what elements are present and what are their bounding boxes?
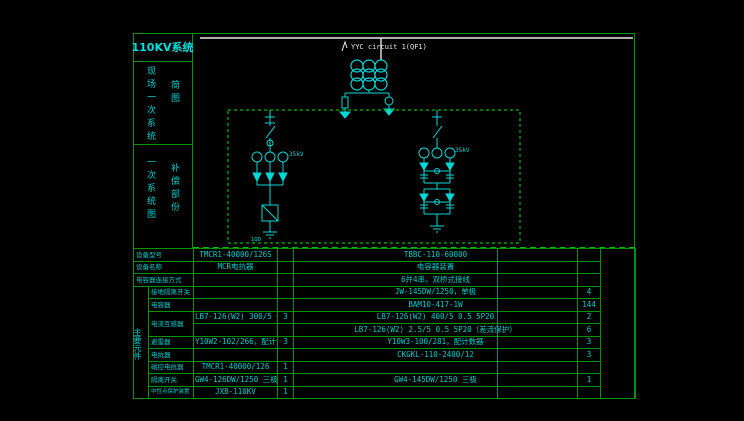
table-row: 磁控电抗器 TMCR1-40000/126 1 (134, 361, 636, 374)
right-model-value: 6并4串，双桥式接线 (294, 274, 578, 287)
row-label: 接地隔离开关 (149, 286, 194, 299)
table-row: 电容器连接方式 6并4串，双桥式接线 (134, 274, 636, 287)
left-model-value (194, 286, 278, 299)
right-branch-voltage-label: 35kV (455, 147, 470, 154)
left-model-value: TMCR1-40000/126 (194, 361, 278, 374)
right-qty: 4 (578, 286, 601, 299)
fuse-icon (342, 97, 348, 108)
right-qty (578, 249, 601, 262)
left-qty (278, 299, 294, 312)
table-row: LB7-126(W2) 2.5/5 0.5 5P20（差流保护） 6 (134, 324, 636, 337)
right-qty: 3 (578, 336, 601, 349)
left-model-value (194, 349, 278, 362)
group-label: 主要元件 (134, 286, 149, 399)
row-label: 电容器连接方式 (134, 274, 194, 287)
table-row: 隔离开关 GW4-126DW/1250 三极 1 GW4-145DW/1250 … (134, 374, 636, 387)
row-label: 中性点保护装置 (149, 386, 194, 399)
left-model-value (194, 324, 278, 337)
right-model-value: LB7-126(W2) 400/5 0.5 5P20 (294, 311, 578, 324)
right-qty: 3 (578, 349, 601, 362)
left-model-value: MCR电抗器 (194, 261, 278, 274)
section1-text: 现场一次系统 (144, 66, 157, 144)
row-label: 磁控电抗器 (149, 361, 194, 374)
table-row: 主要元件 接地隔离开关 JW-145DW/1250，单极 4 (134, 286, 636, 299)
right-qty (578, 386, 601, 399)
left-qty: 1 (278, 386, 294, 399)
left-model-value: Y10W2-102/266，配计数器 (194, 336, 278, 349)
drawing-title: 110KV系统 (133, 33, 192, 62)
left-model-value: LB7-126(W2) 300/5 0.5 5P20 (194, 311, 278, 324)
right-qty (578, 361, 601, 374)
table-row: 避雷器 Y10W2-102/266，配计数器 3 Y10W3-100/281，配… (134, 336, 636, 349)
section2-text: 一次系统图 (144, 157, 157, 248)
thyristor-icon (253, 173, 261, 181)
breaker-icon (266, 126, 275, 138)
left-qty (278, 249, 294, 262)
left-model-value (194, 299, 278, 312)
title-section-1: 现场一次系统 简图 (133, 62, 192, 145)
diode-icon (446, 194, 454, 201)
right-qty: 6 (578, 324, 601, 337)
row-label: 设备名称 (134, 261, 194, 274)
mcr-reactor-branch (252, 110, 288, 238)
diode-icon (420, 163, 428, 170)
left-qty: 3 (278, 336, 294, 349)
table-row: 设备型号 TMCR1-40000/126S TBBC-110-60000 (134, 249, 636, 262)
right-qty (578, 274, 601, 287)
left-model-value (194, 274, 278, 287)
table-row: 中性点保护装置 JXB-110KV 1 (134, 386, 636, 399)
right-model-value: BAM10-417-1W (294, 299, 578, 312)
meter-icon (385, 97, 393, 105)
circuit-label: YYC circuit 1(QF1) (351, 43, 427, 51)
row-label: 避雷器 (149, 336, 194, 349)
right-model-value (294, 386, 578, 399)
thyristor-icon (279, 173, 287, 181)
right-model-value: GW4-145DW/1250 三极 (294, 374, 578, 387)
right-model-value (294, 361, 578, 374)
right-qty: 2 (578, 311, 601, 324)
diode-icon (446, 163, 454, 170)
table-row: 设备名称 MCR电抗器 电容器装置 (134, 261, 636, 274)
left-branch-voltage-label: 35kV (289, 151, 304, 158)
left-qty: 3 (278, 311, 294, 324)
left-qty (278, 324, 294, 337)
row-label: 隔离开关 (149, 374, 194, 387)
left-qty: 1 (278, 361, 294, 374)
table-row: 电容器 BAM10-417-1W 144 (134, 299, 636, 312)
row-label: 设备型号 (134, 249, 194, 262)
thyristor-icon (266, 173, 274, 181)
neutral-branch (340, 90, 394, 118)
right-model-value: JW-145DW/1250，单极 (294, 286, 578, 299)
breaker-icon (433, 126, 442, 138)
transformer-icon (351, 60, 387, 90)
diode-icon (420, 194, 428, 201)
right-model-value: 电容器装置 (294, 261, 578, 274)
right-model-value: CKGKL-110-2400/12 (294, 349, 578, 362)
left-model-value: JXB-110KV (194, 386, 278, 399)
left-model-value: TMCR1-40000/126S (194, 249, 278, 262)
left-qty (278, 261, 294, 274)
right-qty: 144 (578, 299, 601, 312)
right-model-value: TBBC-110-60000 (294, 249, 578, 262)
section2-subtext: 补偿部份 (168, 157, 181, 248)
right-model-value: LB7-126(W2) 2.5/5 0.5 5P20（差流保护） (294, 324, 578, 337)
title-block: 110KV系统 现场一次系统 简图 一次系统图 补偿部份 (133, 33, 193, 248)
table-row: 电流互感器 LB7-126(W2) 300/5 0.5 5P20 3 LB7-1… (134, 311, 636, 324)
left-qty (278, 286, 294, 299)
left-qty (278, 349, 294, 362)
row-label: 电流互感器 (149, 311, 194, 336)
right-model-value: Y10W3-100/281，配计数器 (294, 336, 578, 349)
right-qty: 1 (578, 374, 601, 387)
equipment-spec-table: 设备型号 TMCR1-40000/126S TBBC-110-60000 设备名… (133, 248, 636, 399)
section1-subtext: 简图 (168, 66, 181, 144)
ground-switch-label: 1QD (251, 237, 261, 243)
title-section-2: 一次系统图 补偿部份 (133, 145, 192, 248)
margin-column (601, 249, 636, 399)
single-line-diagram: YYC circuit 1(QF1) (193, 33, 635, 248)
ground-arrow-icon (340, 112, 350, 118)
left-model-value: GW4-126DW/1250 三极 (194, 374, 278, 387)
row-label: 电容器 (149, 299, 194, 312)
check-mark-icon (342, 42, 347, 51)
left-qty: 1 (278, 374, 294, 387)
table-row: 电抗器 CKGKL-110-2400/12 3 (134, 349, 636, 362)
left-qty (278, 274, 294, 287)
right-qty (578, 261, 601, 274)
capacitor-bank-branch (419, 110, 455, 232)
row-label: 电抗器 (149, 349, 194, 362)
